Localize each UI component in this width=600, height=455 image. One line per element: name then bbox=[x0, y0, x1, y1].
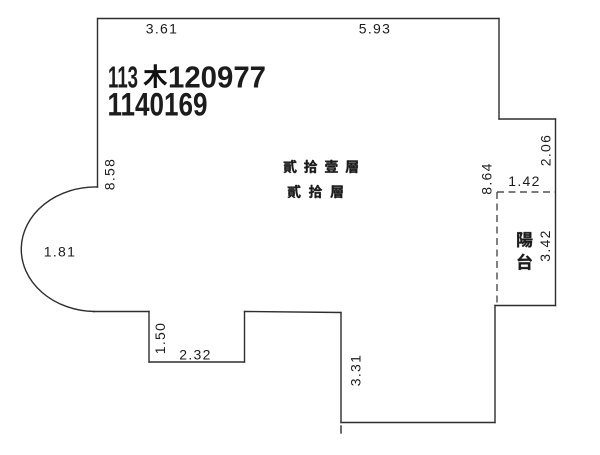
svg-text:5.93: 5.93 bbox=[359, 21, 391, 37]
svg-text:3.42: 3.42 bbox=[537, 229, 553, 261]
svg-text:8.58: 8.58 bbox=[102, 158, 118, 190]
svg-text:3.61: 3.61 bbox=[146, 21, 178, 37]
svg-text:2.06: 2.06 bbox=[538, 134, 554, 166]
svg-text:8.64: 8.64 bbox=[479, 162, 495, 194]
svg-text:2.32: 2.32 bbox=[179, 347, 211, 363]
svg-text:3.31: 3.31 bbox=[348, 354, 364, 386]
svg-text:1.50: 1.50 bbox=[152, 322, 168, 354]
svg-text:1.81: 1.81 bbox=[44, 244, 76, 260]
svg-text:1.42: 1.42 bbox=[508, 173, 540, 189]
svg-text:1140169: 1140169 bbox=[108, 87, 208, 123]
